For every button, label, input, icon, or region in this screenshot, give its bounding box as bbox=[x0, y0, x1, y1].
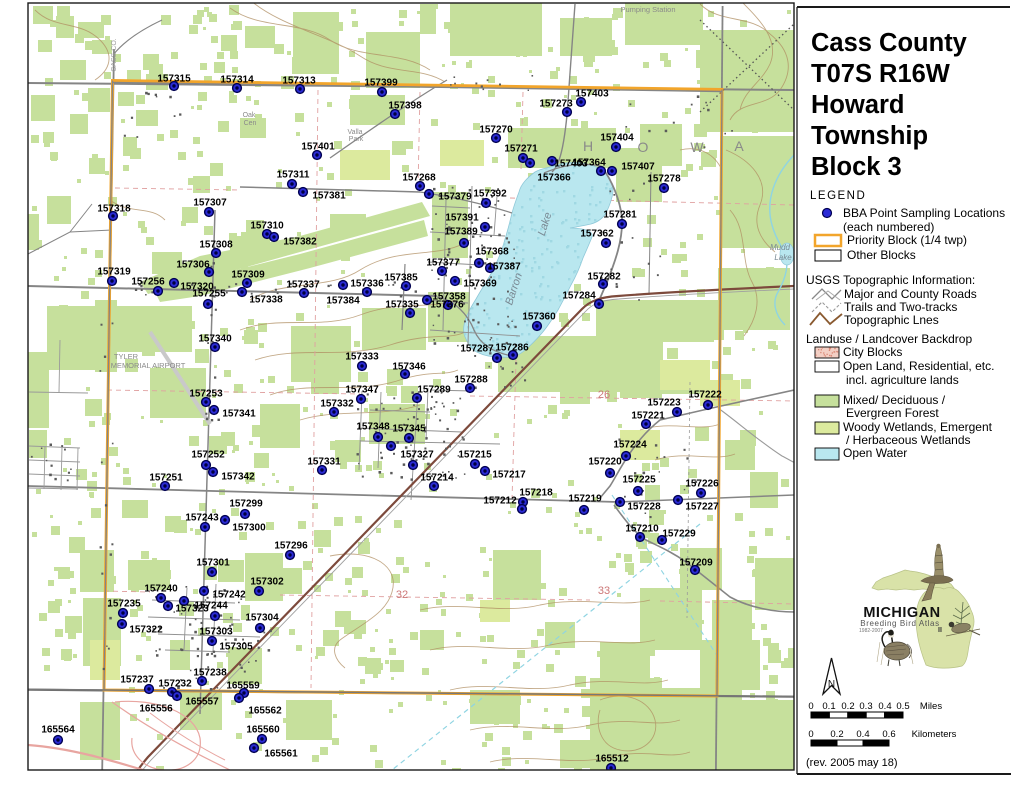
svg-text:0.1: 0.1 bbox=[822, 701, 835, 712]
svg-text:157214: 157214 bbox=[420, 473, 454, 484]
svg-text:157346: 157346 bbox=[392, 362, 426, 373]
svg-text:157287: 157287 bbox=[460, 344, 494, 355]
svg-text:157369: 157369 bbox=[463, 279, 497, 290]
svg-text:157314: 157314 bbox=[220, 75, 254, 86]
svg-text:157341: 157341 bbox=[222, 409, 256, 420]
svg-text:BBA Point Sampling Locations: BBA Point Sampling Locations bbox=[843, 206, 1005, 220]
svg-text:157401: 157401 bbox=[301, 142, 335, 153]
svg-text:0.2: 0.2 bbox=[841, 701, 854, 712]
svg-text:II: II bbox=[938, 627, 942, 634]
svg-text:165560: 165560 bbox=[246, 725, 280, 736]
svg-text:CASS CO.: CASS CO. bbox=[111, 38, 118, 72]
svg-text:Mixed/ Deciduous /: Mixed/ Deciduous / bbox=[843, 393, 946, 407]
svg-text:157310: 157310 bbox=[250, 221, 284, 232]
svg-text:157220: 157220 bbox=[588, 457, 622, 468]
svg-text:Miles: Miles bbox=[920, 701, 942, 712]
svg-text:157327: 157327 bbox=[400, 450, 434, 461]
svg-text:157243: 157243 bbox=[185, 513, 219, 524]
svg-text:157403: 157403 bbox=[575, 89, 609, 100]
svg-text:157252: 157252 bbox=[191, 450, 225, 461]
svg-text:157209: 157209 bbox=[679, 558, 713, 569]
svg-text:Topographic Lnes: Topographic Lnes bbox=[844, 313, 939, 327]
svg-text:157296: 157296 bbox=[274, 541, 308, 552]
svg-text:157212: 157212 bbox=[483, 496, 517, 507]
svg-text:157222: 157222 bbox=[688, 390, 722, 401]
svg-text:157256: 157256 bbox=[131, 277, 165, 288]
svg-text:157387: 157387 bbox=[487, 262, 521, 273]
svg-text:TYLER: TYLER bbox=[114, 352, 139, 361]
svg-text:157392: 157392 bbox=[473, 189, 507, 200]
svg-text:157224: 157224 bbox=[613, 440, 647, 451]
svg-text:157273: 157273 bbox=[539, 99, 573, 110]
svg-text:157403: 157403 bbox=[554, 159, 588, 170]
svg-text:165556: 165556 bbox=[139, 704, 173, 715]
svg-text:City Blocks: City Blocks bbox=[843, 345, 902, 359]
svg-text:157286: 157286 bbox=[495, 343, 529, 354]
svg-text:157229: 157229 bbox=[662, 529, 696, 540]
svg-text:157338: 157338 bbox=[249, 295, 283, 306]
svg-text:165557: 165557 bbox=[185, 697, 219, 708]
svg-text:Landuse / Landcover Backdrop: Landuse / Landcover Backdrop bbox=[806, 332, 972, 346]
svg-text:157288: 157288 bbox=[454, 375, 488, 386]
svg-text:157311: 157311 bbox=[277, 170, 310, 181]
svg-text:Open Land, Residential, etc.: Open Land, Residential, etc. bbox=[843, 359, 994, 373]
svg-text:0: 0 bbox=[808, 729, 813, 740]
svg-text:157366: 157366 bbox=[537, 173, 571, 184]
svg-text:157271: 157271 bbox=[504, 144, 538, 155]
svg-text:157385: 157385 bbox=[384, 273, 418, 284]
svg-text:157302: 157302 bbox=[250, 577, 284, 588]
svg-text:157301: 157301 bbox=[196, 558, 230, 569]
svg-text:Block 3: Block 3 bbox=[811, 153, 902, 181]
svg-text:157217: 157217 bbox=[492, 470, 526, 481]
svg-text:Lake: Lake bbox=[774, 253, 792, 262]
svg-text:157235: 157235 bbox=[107, 599, 141, 610]
svg-text:incl. agriculture lands: incl. agriculture lands bbox=[846, 373, 959, 387]
svg-text:157223: 157223 bbox=[647, 398, 681, 409]
svg-text:157240: 157240 bbox=[144, 584, 178, 595]
svg-text:165562: 165562 bbox=[248, 706, 282, 717]
svg-text:157228: 157228 bbox=[627, 502, 661, 513]
svg-text:Mudd: Mudd bbox=[770, 243, 791, 252]
svg-text:157306: 157306 bbox=[176, 260, 210, 271]
svg-text:Evergreen Forest: Evergreen Forest bbox=[846, 406, 939, 420]
svg-text:157304: 157304 bbox=[245, 613, 279, 624]
svg-text:165564: 165564 bbox=[41, 725, 75, 736]
svg-text:157308: 157308 bbox=[199, 240, 233, 251]
svg-text:157340: 157340 bbox=[198, 334, 232, 345]
svg-text:165512: 165512 bbox=[595, 754, 629, 765]
svg-text:0.6: 0.6 bbox=[882, 729, 895, 740]
svg-text:157376: 157376 bbox=[430, 300, 464, 311]
svg-text:165561: 165561 bbox=[264, 749, 298, 760]
svg-text:0: 0 bbox=[808, 701, 813, 712]
svg-text:A: A bbox=[734, 138, 744, 154]
svg-text:157303: 157303 bbox=[199, 627, 233, 638]
svg-text:157391: 157391 bbox=[445, 213, 479, 224]
svg-text:0.3: 0.3 bbox=[859, 701, 872, 712]
svg-text:Cass County: Cass County bbox=[811, 29, 968, 57]
svg-text:157382: 157382 bbox=[283, 237, 317, 248]
svg-text:157232: 157232 bbox=[158, 679, 192, 690]
svg-text:Open Water: Open Water bbox=[843, 446, 907, 460]
svg-text:0.2: 0.2 bbox=[830, 729, 843, 740]
svg-text:157399: 157399 bbox=[364, 78, 398, 89]
svg-text:32: 32 bbox=[396, 589, 408, 601]
svg-text:157210: 157210 bbox=[625, 524, 659, 535]
svg-text:157218: 157218 bbox=[519, 488, 553, 499]
svg-text:157323: 157323 bbox=[175, 604, 209, 615]
svg-text:157348: 157348 bbox=[356, 422, 390, 433]
svg-text:157315: 157315 bbox=[157, 74, 191, 85]
svg-text:157379: 157379 bbox=[438, 192, 472, 203]
svg-text:Howard: Howard bbox=[811, 91, 905, 119]
svg-text:157333: 157333 bbox=[345, 352, 379, 363]
svg-text:157309: 157309 bbox=[231, 270, 265, 281]
svg-text:157377: 157377 bbox=[426, 258, 460, 269]
svg-text:157332: 157332 bbox=[320, 399, 354, 410]
svg-text:157226: 157226 bbox=[685, 479, 719, 490]
svg-text:157318: 157318 bbox=[97, 204, 131, 215]
svg-text:Township: Township bbox=[811, 122, 928, 150]
svg-text:157278: 157278 bbox=[647, 174, 681, 185]
svg-text:Priority Block (1/4 twp): Priority Block (1/4 twp) bbox=[847, 233, 967, 247]
svg-text:Trails and Two-tracks: Trails and Two-tracks bbox=[844, 300, 957, 314]
svg-text:157251: 157251 bbox=[149, 473, 183, 484]
svg-text:LEGEND: LEGEND bbox=[810, 190, 866, 202]
svg-text:1982-2007: 1982-2007 bbox=[859, 628, 883, 634]
svg-text:(rev. 2005 may 18): (rev. 2005 may 18) bbox=[806, 757, 898, 769]
svg-text:0.4: 0.4 bbox=[878, 701, 891, 712]
svg-text:33: 33 bbox=[598, 585, 610, 597]
svg-text:/ Herbaceous Wetlands: / Herbaceous Wetlands bbox=[846, 433, 971, 447]
svg-text:157407: 157407 bbox=[621, 162, 655, 173]
svg-text:Kilometers: Kilometers bbox=[912, 729, 957, 740]
svg-text:157299: 157299 bbox=[229, 499, 263, 510]
svg-text:Other Blocks: Other Blocks bbox=[847, 248, 916, 262]
svg-text:H: H bbox=[583, 138, 593, 154]
svg-text:Major and County Roads: Major and County Roads bbox=[844, 287, 977, 301]
svg-text:157319: 157319 bbox=[97, 267, 131, 278]
svg-text:0.4: 0.4 bbox=[856, 729, 869, 740]
svg-text:157237: 157237 bbox=[120, 675, 154, 686]
svg-text:157404: 157404 bbox=[600, 133, 634, 144]
svg-text:157305: 157305 bbox=[219, 642, 253, 653]
svg-text:Breeding Bird Atlas: Breeding Bird Atlas bbox=[860, 619, 939, 628]
svg-text:157219: 157219 bbox=[568, 494, 602, 505]
svg-text:MEMORIAL AIRPORT: MEMORIAL AIRPORT bbox=[111, 361, 186, 370]
svg-text:157221: 157221 bbox=[631, 411, 665, 422]
svg-text:26: 26 bbox=[598, 389, 610, 401]
svg-text:165559: 165559 bbox=[226, 681, 260, 692]
svg-text:157255: 157255 bbox=[192, 289, 226, 300]
svg-text:157368: 157368 bbox=[475, 247, 509, 258]
svg-text:N: N bbox=[828, 679, 835, 690]
svg-text:157360: 157360 bbox=[522, 312, 556, 323]
svg-text:USGS Topographic Information:: USGS Topographic Information: bbox=[806, 273, 975, 287]
svg-text:Valla: Valla bbox=[347, 129, 362, 136]
svg-text:157227: 157227 bbox=[685, 502, 719, 513]
svg-text:157225: 157225 bbox=[622, 475, 656, 486]
svg-text:W: W bbox=[690, 139, 704, 155]
svg-text:157398: 157398 bbox=[388, 101, 422, 112]
svg-text:157307: 157307 bbox=[193, 198, 227, 209]
svg-text:157242: 157242 bbox=[212, 590, 246, 601]
svg-text:157362: 157362 bbox=[580, 229, 614, 240]
svg-text:157282: 157282 bbox=[587, 272, 621, 283]
svg-text:157268: 157268 bbox=[402, 173, 436, 184]
svg-text:Park: Park bbox=[349, 136, 364, 143]
svg-text:0.5: 0.5 bbox=[896, 701, 909, 712]
svg-text:Woody Wetlands, Emergent: Woody Wetlands, Emergent bbox=[843, 420, 993, 434]
svg-text:157337: 157337 bbox=[286, 280, 320, 291]
svg-text:157215: 157215 bbox=[458, 450, 492, 461]
svg-text:157345: 157345 bbox=[392, 424, 426, 435]
svg-text:157335: 157335 bbox=[385, 300, 419, 311]
svg-text:T07S R16W: T07S R16W bbox=[811, 60, 951, 88]
svg-text:157384: 157384 bbox=[326, 296, 360, 307]
svg-text:157284: 157284 bbox=[562, 291, 596, 302]
svg-text:157322: 157322 bbox=[129, 625, 163, 636]
svg-text:O: O bbox=[638, 139, 649, 155]
svg-text:157389: 157389 bbox=[444, 227, 478, 238]
svg-text:Cen: Cen bbox=[244, 120, 257, 127]
svg-text:157331: 157331 bbox=[307, 457, 341, 468]
svg-text:Oak: Oak bbox=[243, 112, 256, 119]
svg-text:157313: 157313 bbox=[282, 76, 316, 87]
svg-text:157238: 157238 bbox=[193, 668, 227, 679]
svg-text:157281: 157281 bbox=[603, 210, 637, 221]
svg-text:157342: 157342 bbox=[221, 472, 255, 483]
svg-text:157253: 157253 bbox=[189, 389, 223, 400]
svg-text:(each numbered): (each numbered) bbox=[843, 220, 934, 234]
svg-text:157347: 157347 bbox=[345, 385, 379, 396]
svg-text:157300: 157300 bbox=[232, 523, 266, 534]
svg-text:157381: 157381 bbox=[312, 191, 346, 202]
svg-text:Pumping Station: Pumping Station bbox=[620, 5, 675, 14]
svg-text:157289: 157289 bbox=[417, 385, 451, 396]
svg-text:157270: 157270 bbox=[479, 125, 513, 136]
